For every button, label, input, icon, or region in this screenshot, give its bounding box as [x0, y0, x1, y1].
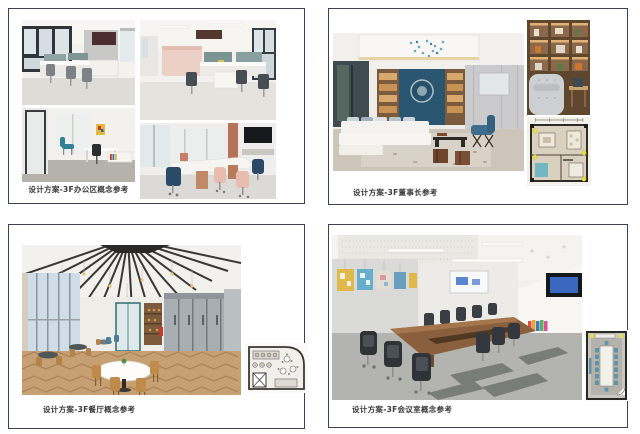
photo-bookshelf-armchair: [527, 20, 590, 115]
photo-open-office-desks: [22, 20, 135, 105]
photo-dining-hall: [22, 245, 241, 395]
photo-conference-room: [332, 235, 582, 400]
photo-conference-floor-plan: [585, 330, 628, 401]
panel-meeting: 设计方案-3F会议室概念参考: [328, 224, 628, 428]
photo-chairman-lounge: [333, 33, 524, 171]
design-reference-board-page: { "palette": { "panel_border": "#3a4257"…: [0, 0, 640, 434]
panel-office-area: 设计方案-3F办公区概念参考: [8, 8, 305, 204]
panel-chairman: 设计方案-3F董事长参考: [328, 8, 628, 205]
caption-chairman: 设计方案-3F董事长参考: [353, 188, 438, 197]
panel-dining: 设计方案-3F餐厅概念参考: [8, 224, 305, 429]
caption-dining: 设计方案-3F餐厅概念参考: [43, 405, 135, 414]
photo-chairman-floor-plan: [527, 117, 591, 186]
photo-small-meeting-table: [140, 123, 276, 199]
caption-office-area: 设计方案-3F办公区概念参考: [22, 185, 135, 194]
photo-dining-floor-plan: [245, 343, 308, 393]
photo-private-office: [22, 108, 135, 182]
caption-meeting: 设计方案-3F会议室概念参考: [352, 405, 452, 414]
photo-open-office-pink-partition: [140, 20, 276, 120]
